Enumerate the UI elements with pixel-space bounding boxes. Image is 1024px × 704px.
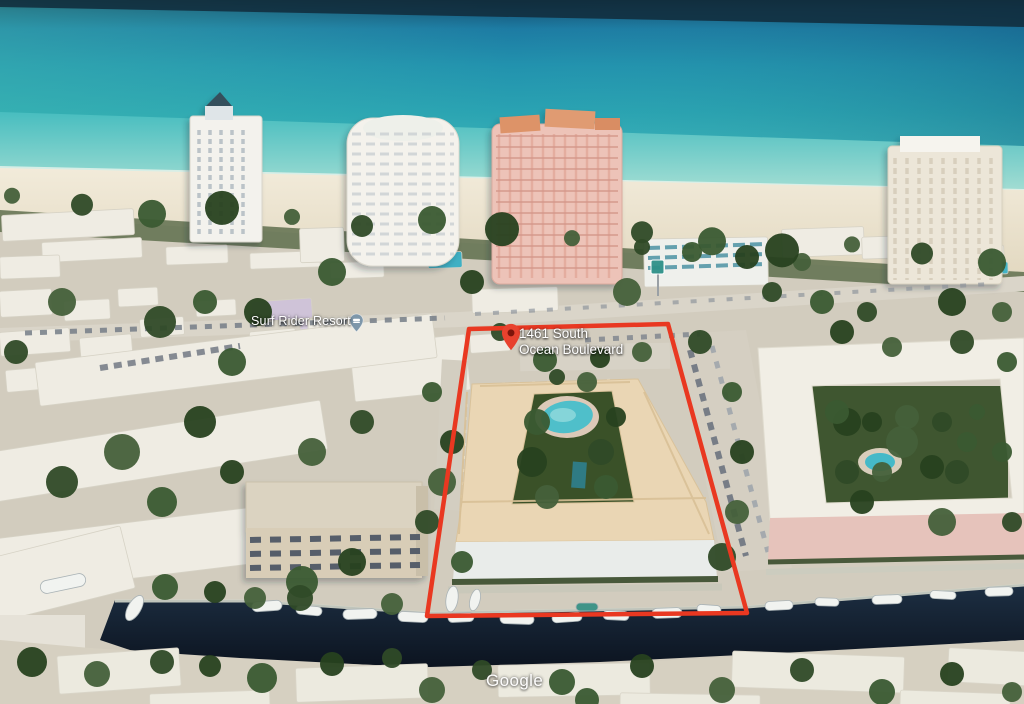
tree bbox=[284, 209, 300, 225]
right-complex-facade bbox=[768, 513, 1024, 560]
tree bbox=[735, 245, 759, 269]
tree bbox=[969, 404, 985, 420]
tree bbox=[631, 221, 653, 243]
tree bbox=[630, 654, 654, 678]
boat bbox=[343, 608, 377, 619]
detail-row bbox=[250, 551, 420, 554]
tree bbox=[957, 432, 977, 452]
tree bbox=[765, 233, 799, 267]
tree bbox=[1002, 682, 1022, 702]
tree bbox=[84, 661, 110, 687]
tree bbox=[350, 410, 374, 434]
tree bbox=[872, 462, 892, 482]
boat bbox=[930, 590, 956, 599]
tree bbox=[886, 426, 918, 458]
tree bbox=[722, 382, 742, 402]
tree bbox=[422, 382, 442, 402]
tree bbox=[415, 510, 439, 534]
tree bbox=[48, 288, 76, 316]
tree bbox=[381, 593, 403, 615]
tree bbox=[688, 330, 712, 354]
lap-pool bbox=[571, 462, 587, 489]
satellite-imagery bbox=[0, 0, 1024, 704]
tree bbox=[351, 215, 373, 237]
tree bbox=[850, 490, 874, 514]
roof bbox=[0, 255, 60, 279]
tree bbox=[419, 677, 445, 703]
aerial-map-canvas[interactable]: Surf Rider Resort 1461 South Ocean Boule… bbox=[0, 0, 1024, 704]
tree bbox=[138, 200, 166, 228]
tree bbox=[533, 348, 557, 372]
tree bbox=[632, 342, 652, 362]
roof bbox=[299, 227, 344, 263]
tree bbox=[857, 302, 877, 322]
tree bbox=[709, 677, 735, 703]
boat bbox=[815, 598, 839, 607]
tree bbox=[184, 406, 216, 438]
boat bbox=[872, 594, 902, 604]
tree bbox=[144, 306, 176, 338]
tree bbox=[460, 270, 484, 294]
tree bbox=[762, 282, 782, 302]
tree bbox=[928, 508, 956, 536]
boat bbox=[765, 600, 793, 610]
roof bbox=[620, 693, 760, 704]
apartment-complex-right bbox=[758, 338, 1024, 572]
tree bbox=[895, 405, 919, 429]
tree bbox=[564, 230, 580, 246]
tree bbox=[932, 412, 952, 432]
roof bbox=[0, 289, 53, 318]
tree bbox=[485, 212, 519, 246]
tree bbox=[862, 412, 882, 432]
tree bbox=[244, 298, 272, 326]
roof bbox=[166, 245, 229, 265]
tree bbox=[920, 455, 944, 479]
tree bbox=[320, 652, 344, 676]
tree bbox=[524, 409, 550, 435]
tree bbox=[606, 407, 626, 427]
tree bbox=[1002, 512, 1022, 532]
tree bbox=[992, 442, 1012, 462]
tree bbox=[517, 447, 547, 477]
google-watermark: Google bbox=[486, 671, 543, 691]
tree bbox=[104, 434, 140, 470]
hedge bbox=[452, 579, 718, 582]
detail-row bbox=[250, 565, 420, 568]
roof bbox=[118, 287, 159, 307]
tree bbox=[790, 658, 814, 682]
tree bbox=[150, 650, 174, 674]
tree bbox=[204, 581, 226, 603]
roof bbox=[295, 664, 428, 703]
tree bbox=[882, 337, 902, 357]
dock bbox=[448, 587, 722, 590]
tree bbox=[428, 468, 456, 496]
tree bbox=[451, 551, 473, 573]
tree bbox=[4, 340, 28, 364]
tree bbox=[549, 369, 565, 385]
tree bbox=[193, 290, 217, 314]
tree bbox=[549, 669, 575, 695]
tree bbox=[844, 236, 860, 252]
property-facade bbox=[453, 540, 717, 580]
boat bbox=[576, 603, 598, 611]
tree bbox=[830, 320, 854, 344]
tree bbox=[46, 466, 78, 498]
map-pin-red[interactable] bbox=[501, 323, 521, 351]
tree bbox=[247, 663, 277, 693]
lodging-pin[interactable] bbox=[349, 313, 364, 333]
tree bbox=[535, 485, 559, 509]
tree bbox=[825, 400, 849, 424]
roof bbox=[472, 287, 559, 314]
tree bbox=[594, 475, 618, 499]
tree bbox=[978, 249, 1006, 277]
tree bbox=[938, 288, 966, 316]
tree bbox=[205, 191, 239, 225]
tree bbox=[318, 258, 346, 286]
tree bbox=[287, 585, 313, 611]
tree bbox=[911, 242, 933, 264]
tree bbox=[835, 460, 859, 484]
tree bbox=[17, 647, 47, 677]
tree bbox=[613, 278, 641, 306]
tree bbox=[698, 227, 726, 255]
tree bbox=[418, 206, 446, 234]
tree bbox=[725, 500, 749, 524]
tree bbox=[992, 302, 1012, 322]
tree bbox=[588, 439, 614, 465]
tree bbox=[997, 352, 1017, 372]
boat bbox=[985, 587, 1013, 597]
detail-row bbox=[250, 537, 420, 540]
tree bbox=[940, 662, 964, 686]
tree bbox=[945, 460, 969, 484]
tree bbox=[298, 438, 326, 466]
boat bbox=[398, 611, 428, 623]
tree bbox=[382, 648, 402, 668]
tree bbox=[590, 348, 610, 368]
tree bbox=[4, 188, 20, 204]
tree bbox=[199, 655, 221, 677]
tree bbox=[71, 194, 93, 216]
tree bbox=[577, 372, 597, 392]
tree bbox=[218, 348, 246, 376]
tree bbox=[147, 487, 177, 517]
tree bbox=[730, 440, 754, 464]
tree bbox=[152, 574, 178, 600]
tree bbox=[220, 460, 244, 484]
tree bbox=[244, 587, 266, 609]
tree bbox=[950, 330, 974, 354]
tree bbox=[810, 290, 834, 314]
tree bbox=[869, 679, 895, 704]
tree bbox=[338, 548, 366, 576]
